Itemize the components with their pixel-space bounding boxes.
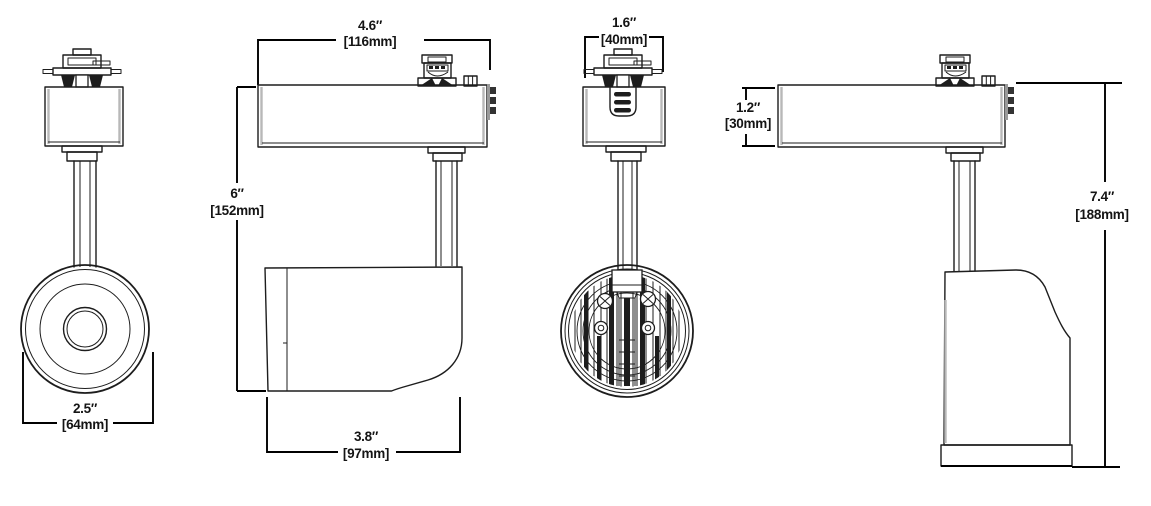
yoke-neck: [62, 146, 102, 161]
junction-box: [583, 87, 665, 146]
stem: [436, 161, 457, 266]
track-adapter-icon: [584, 49, 662, 87]
stem: [74, 161, 96, 267]
ring-screw: [595, 322, 608, 335]
track-light-dimension-drawing: 2.5″ [64mm] 4.6″ [116mm]: [0, 0, 1151, 506]
dim-adapter-width-in: 1.6″: [612, 15, 637, 30]
dim-housing-height-mm: [30mm]: [725, 116, 771, 131]
phillips-screw: [641, 292, 656, 307]
ring-screw: [642, 322, 655, 335]
yoke-neck: [428, 147, 465, 161]
vent-slot: [614, 92, 631, 97]
yoke-neck: [946, 147, 983, 161]
dim-lens-diameter-mm: [64mm]: [62, 417, 108, 432]
yoke-neck: [606, 146, 646, 161]
dim-head-width: 4.6″ [116mm]: [258, 18, 490, 85]
dim-head-width-mm: [116mm]: [344, 34, 397, 49]
stem: [618, 161, 637, 271]
dim-body-length: 3.8″ [97mm]: [267, 397, 460, 461]
junction-box: [778, 85, 1005, 147]
dim-overall-height-down-mm: [188mm]: [1075, 207, 1128, 222]
lamp-body: [265, 267, 462, 391]
dim-adapter-width-mm: [40mm]: [601, 32, 647, 47]
vent-slot: [614, 100, 631, 105]
dim-overall-height-down-in: 7.4″: [1090, 189, 1115, 204]
side-view-horizontal: 4.6″ [116mm] 6″ [152mm]: [210, 18, 496, 461]
dim-overall-height-mm: [152mm]: [210, 203, 263, 218]
technical-drawing-canvas: 2.5″ [64mm] 4.6″ [116mm]: [0, 0, 1151, 506]
junction-box: [258, 85, 487, 147]
dim-housing-height-in: 1.2″: [736, 100, 761, 115]
track-adapter-icon: [43, 49, 121, 87]
lamp-body: [941, 270, 1072, 466]
lens-bezel: [941, 445, 1072, 466]
phillips-screw: [598, 294, 613, 309]
rear-view: 1.6″ [40mm]: [561, 15, 693, 397]
dim-body-length-in: 3.8″: [354, 429, 379, 444]
dim-overall-height-in: 6″: [230, 186, 244, 201]
dim-body-length-mm: [97mm]: [343, 446, 389, 461]
vent-slot: [614, 108, 631, 113]
lens-rings: [21, 265, 149, 393]
side-view-aimed-down: 1.2″ [30mm] 7.4″ [188mm]: [725, 55, 1129, 467]
dim-overall-height-down: 7.4″ [188mm]: [1016, 83, 1129, 467]
junction-box: [45, 87, 123, 146]
dim-housing-height: 1.2″ [30mm]: [725, 88, 775, 146]
heatsink: [561, 265, 693, 397]
dim-head-width-in: 4.6″: [358, 18, 383, 33]
front-view: 2.5″ [64mm]: [21, 49, 153, 432]
stem: [954, 161, 975, 271]
dim-lens-diameter-in: 2.5″: [73, 401, 98, 416]
